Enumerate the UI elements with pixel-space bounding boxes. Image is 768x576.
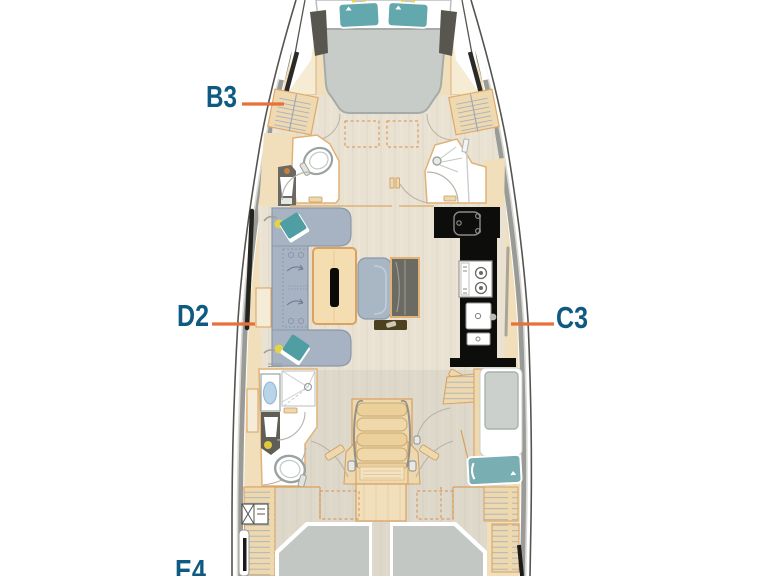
svg-text:E4: E4	[175, 553, 207, 576]
svg-text:D2: D2	[177, 298, 209, 333]
svg-text:B3: B3	[206, 79, 237, 114]
svg-text:C3: C3	[556, 300, 588, 335]
